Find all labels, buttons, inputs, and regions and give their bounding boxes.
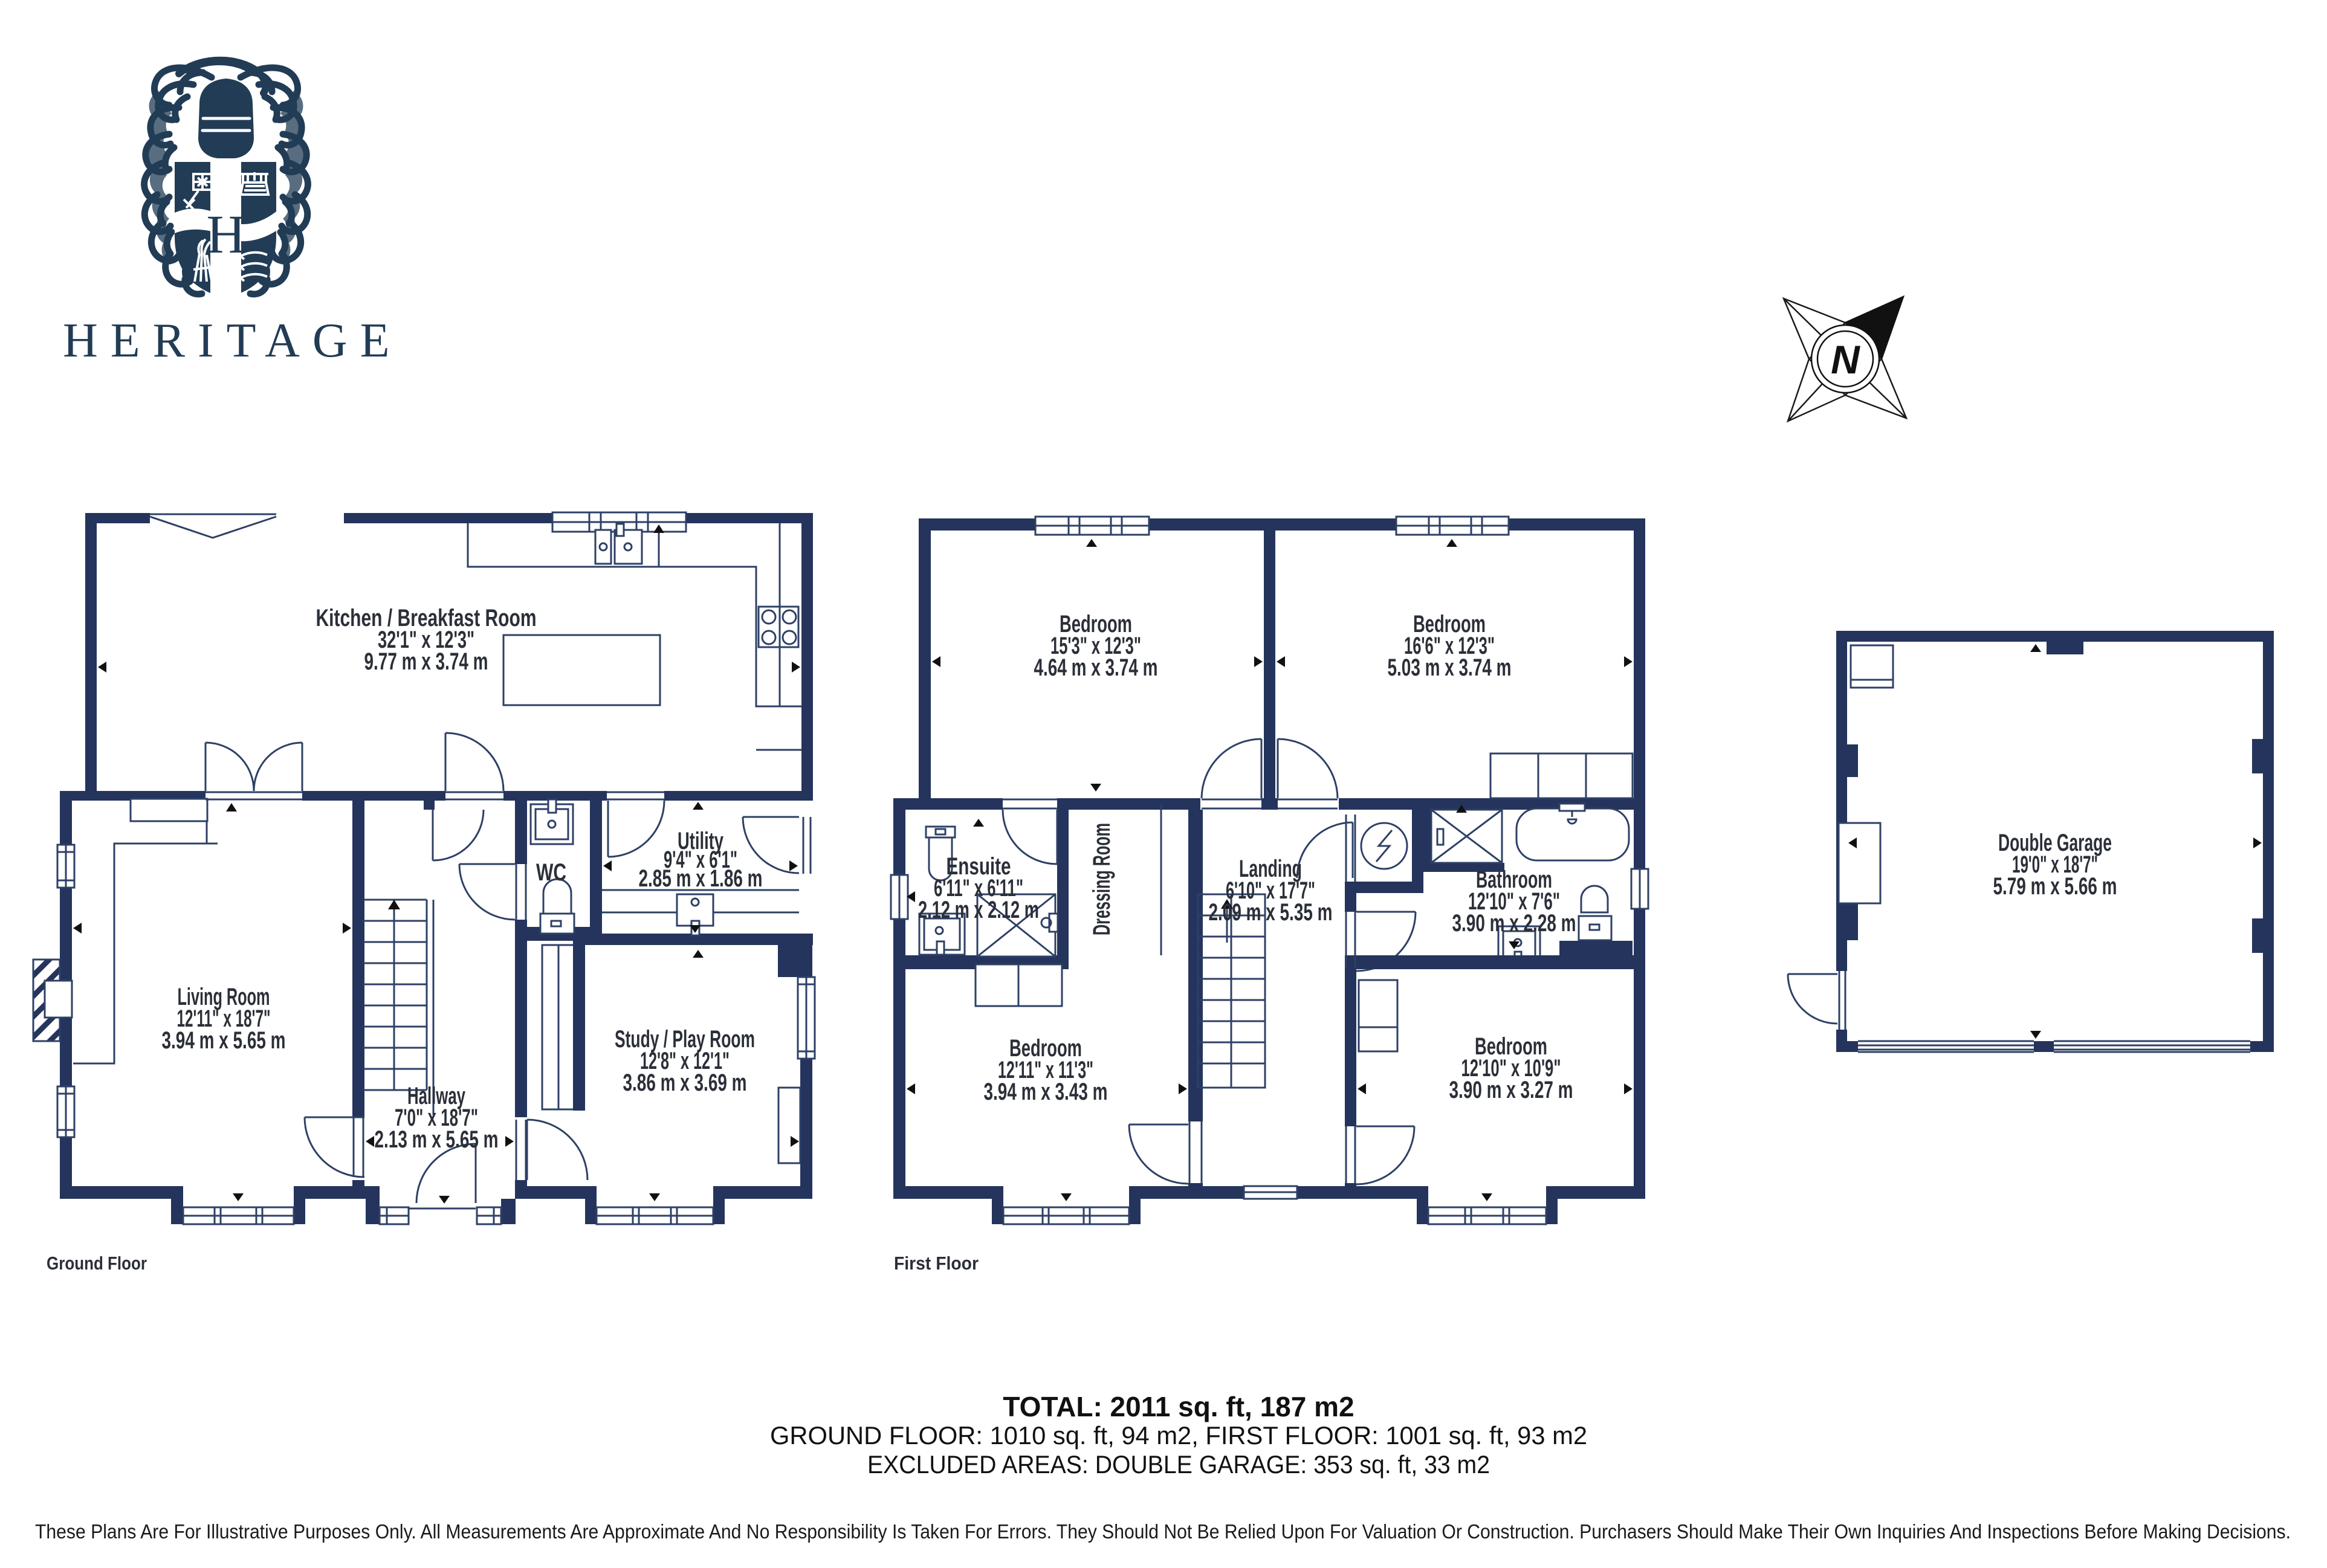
svg-text:4.64 m x 3.74 m: 4.64 m x 3.74 m — [1034, 654, 1158, 681]
svg-text:5.03 m x 3.74 m: 5.03 m x 3.74 m — [1388, 654, 1512, 681]
svg-text:Ground Floor: Ground Floor — [47, 1253, 147, 1274]
svg-text:3.94 m x 5.65 m: 3.94 m x 5.65 m — [162, 1027, 286, 1054]
svg-text:3.86 m x 3.69 m: 3.86 m x 3.69 m — [623, 1070, 747, 1096]
svg-text:2.09 m x 5.35 m: 2.09 m x 5.35 m — [1209, 899, 1333, 926]
svg-text:These Plans Are For Illustrati: These Plans Are For Illustrative Purpose… — [35, 1520, 2291, 1543]
svg-text:2.12 m x 2.12 m: 2.12 m x 2.12 m — [918, 897, 1039, 923]
svg-text:3.90 m x 3.27 m: 3.90 m x 3.27 m — [1449, 1077, 1573, 1103]
svg-text:GROUND FLOOR: 1010 sq. ft, 94: GROUND FLOOR: 1010 sq. ft, 94 m2, FIRST … — [770, 1421, 1587, 1450]
svg-text:2.13 m x 5.65 m: 2.13 m x 5.65 m — [375, 1126, 499, 1153]
svg-text:2.85 m x 1.86 m: 2.85 m x 1.86 m — [639, 865, 763, 892]
svg-text:9.77 m x 3.74 m: 9.77 m x 3.74 m — [364, 648, 488, 675]
svg-text:Dressing Room: Dressing Room — [1089, 823, 1115, 935]
svg-text:3.90 m x 2.28 m: 3.90 m x 2.28 m — [1452, 910, 1576, 937]
svg-text:First Floor: First Floor — [894, 1253, 979, 1274]
svg-text:WC: WC — [536, 859, 566, 886]
svg-text:EXCLUDED AREAS: DOUBLE GARAGE:: EXCLUDED AREAS: DOUBLE GARAGE: 353 sq. f… — [867, 1450, 1490, 1479]
svg-text:H: H — [207, 205, 246, 265]
svg-text:3.94 m x 3.43 m: 3.94 m x 3.43 m — [984, 1079, 1108, 1105]
svg-text:5.79 m x 5.66 m: 5.79 m x 5.66 m — [1993, 873, 2117, 900]
svg-text:HERITAGE: HERITAGE — [63, 314, 403, 367]
svg-text:TOTAL: 2011 sq. ft, 187 m2: TOTAL: 2011 sq. ft, 187 m2 — [1003, 1391, 1354, 1422]
svg-text:N: N — [1831, 337, 1860, 382]
